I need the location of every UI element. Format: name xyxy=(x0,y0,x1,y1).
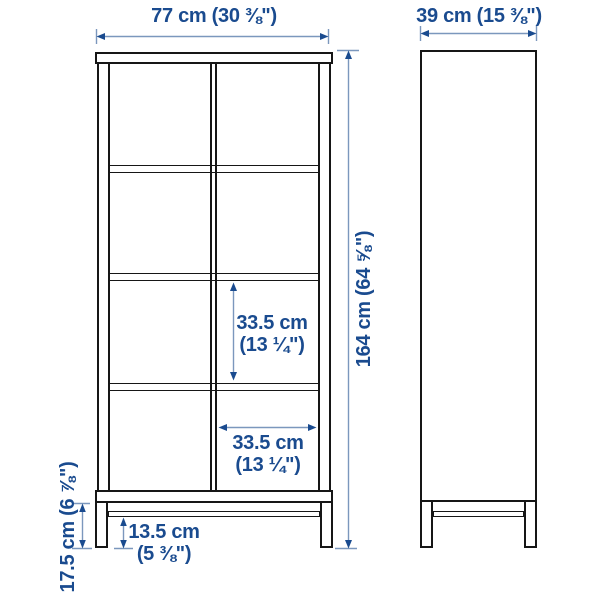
arrow-right-icon xyxy=(320,33,329,40)
arrow-up-icon xyxy=(230,283,237,292)
width-dimension-label: 77 cm (30 ⅜") xyxy=(95,5,333,27)
arrow-left-icon xyxy=(421,30,430,37)
arrow-down-icon xyxy=(79,540,86,549)
arrow-left-icon xyxy=(97,33,106,40)
leg-height-dimension-label: 17.5 cm (6 ⅞") xyxy=(57,462,79,593)
product-dimension-diagram: 77 cm (30 ⅜") 39 cm (15 ⅜") 164 cm (64 ⅝… xyxy=(0,0,600,600)
compartment-height-label: 33.5 cm (13 ¼") xyxy=(212,312,332,356)
front-underframe-rail xyxy=(108,511,320,517)
height-dimension-label: 164 cm (64 ⅝") xyxy=(353,231,375,367)
arrow-left-icon xyxy=(219,424,228,431)
compartment-height-imperial: (13 ¼") xyxy=(212,334,332,356)
arrow-down-icon xyxy=(230,372,237,381)
compartment-width-label: 33.5 cm (13 ¼") xyxy=(208,432,328,476)
depth-dimension-arrow xyxy=(421,26,537,41)
floor-clearance-metric: 13.5 cm xyxy=(113,521,215,543)
width-dimension-arrow xyxy=(97,29,329,44)
compartment-height-metric: 33.5 cm xyxy=(212,312,332,334)
arrow-up-icon xyxy=(345,51,352,60)
side-underframe-rail xyxy=(433,511,524,517)
depth-dimension-label: 39 cm (15 ⅜") xyxy=(408,5,550,27)
front-bottom-panel xyxy=(95,490,333,503)
compartment-width-imperial: (13 ¼") xyxy=(208,454,328,476)
front-left-leg xyxy=(95,503,108,548)
front-right-leg xyxy=(320,503,333,548)
arrow-right-icon xyxy=(308,424,317,431)
side-body xyxy=(420,50,537,502)
front-shelf-3 xyxy=(108,383,320,391)
arrow-down-icon xyxy=(345,540,352,549)
arrow-up-icon xyxy=(79,504,86,513)
compartment-width-metric: 33.5 cm xyxy=(208,432,328,454)
front-shelf-1 xyxy=(108,165,320,173)
floor-clearance-imperial: (5 ⅜") xyxy=(113,543,215,565)
arrow-right-icon xyxy=(528,30,537,37)
side-back-leg xyxy=(524,502,537,548)
floor-clearance-label: 13.5 cm (5 ⅜") xyxy=(113,521,215,565)
front-shelf-2 xyxy=(108,273,320,281)
side-front-leg xyxy=(420,502,433,548)
compartment-width-arrow xyxy=(219,424,317,431)
